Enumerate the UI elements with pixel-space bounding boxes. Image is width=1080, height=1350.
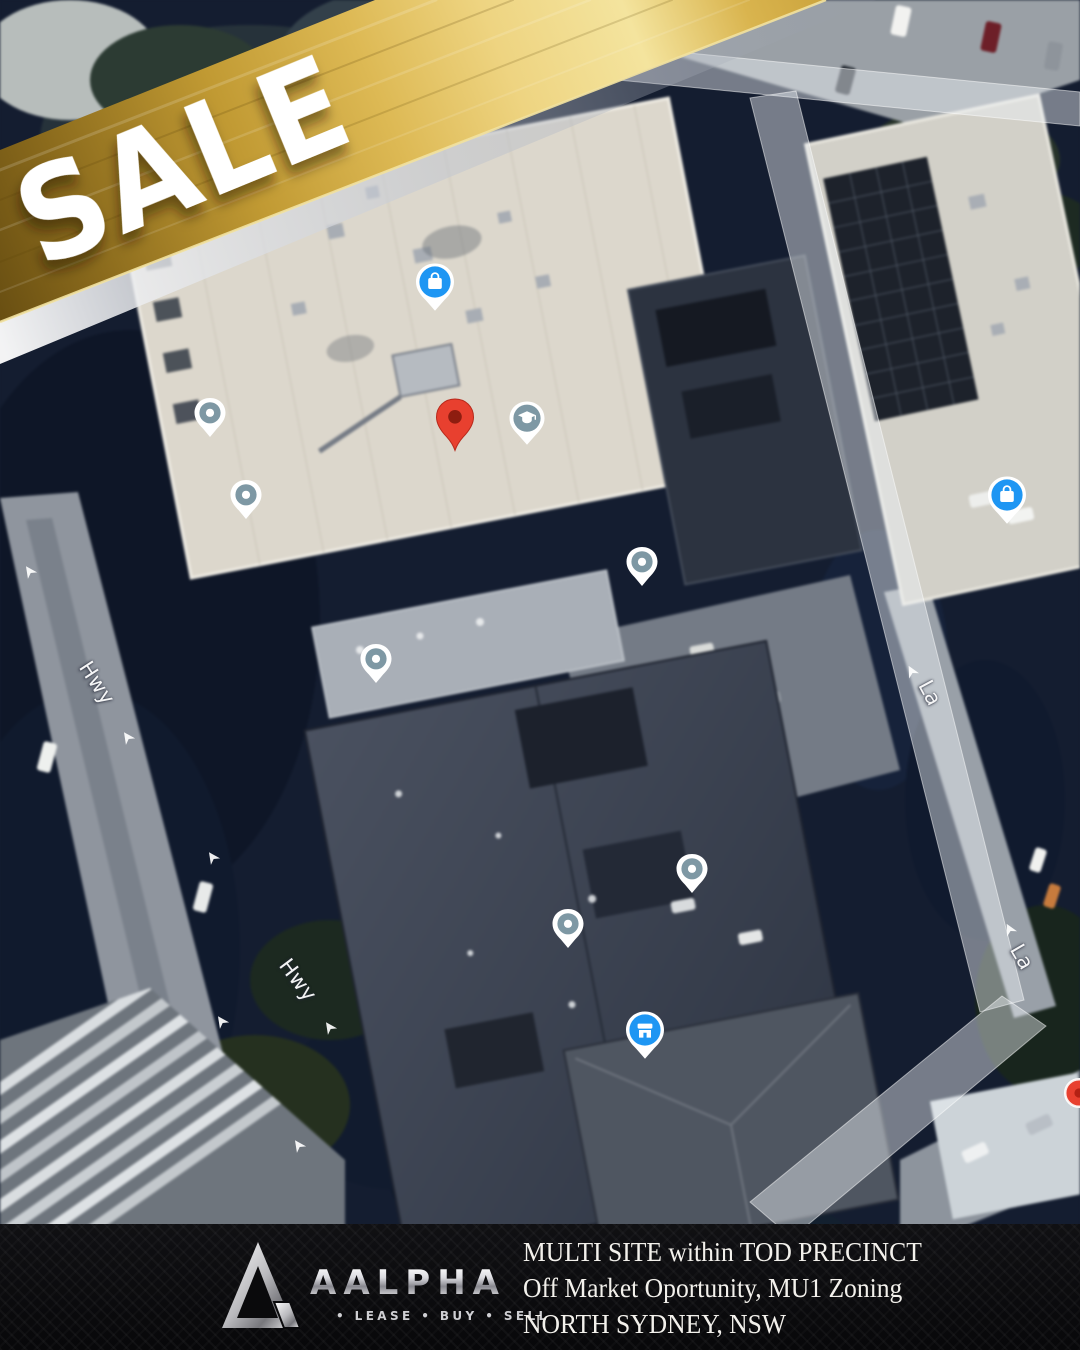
listing-line-1: MULTI SITE within TOD PRECINCT (523, 1234, 922, 1270)
map-pin-property-marker[interactable] (434, 397, 476, 453)
map-pin-poi-dot[interactable] (192, 396, 228, 440)
map-pins-layer (0, 0, 1080, 1350)
map-pin-storefront[interactable] (623, 1010, 667, 1062)
listing-line-2: Off Market Oportunity, MU1 Zoning (523, 1270, 922, 1306)
alpha-triangle-icon (222, 1240, 300, 1332)
map-pin-poi-red-partial[interactable] (1063, 1077, 1080, 1109)
map-pin-poi-dot[interactable] (674, 852, 710, 896)
listing-details: MULTI SITE within TOD PRECINCT Off Marke… (523, 1234, 922, 1341)
flyer-canvas: HwyHwyLaLa (0, 0, 1080, 1350)
brand-tagline: • LEASE • BUY • SELL (310, 1309, 550, 1323)
listing-line-3: NORTH SYDNEY, NSW (523, 1306, 922, 1342)
map-pin-school[interactable] (507, 400, 547, 448)
map-pin-shopping-bag[interactable] (413, 262, 457, 314)
footer: AALPHA • LEASE • BUY • SELL MULTI SITE w… (0, 1224, 1080, 1350)
map-pin-poi-dot[interactable] (624, 545, 660, 589)
map-pin-shopping-bag[interactable] (985, 475, 1029, 527)
brand-name: AALPHA (310, 1266, 550, 1300)
brand-logo: AALPHA • LEASE • BUY • SELL (222, 1240, 550, 1332)
map-pin-poi-dot[interactable] (550, 907, 586, 951)
map-pin-poi-dot[interactable] (228, 478, 264, 522)
map-pin-poi-dot[interactable] (358, 642, 394, 686)
